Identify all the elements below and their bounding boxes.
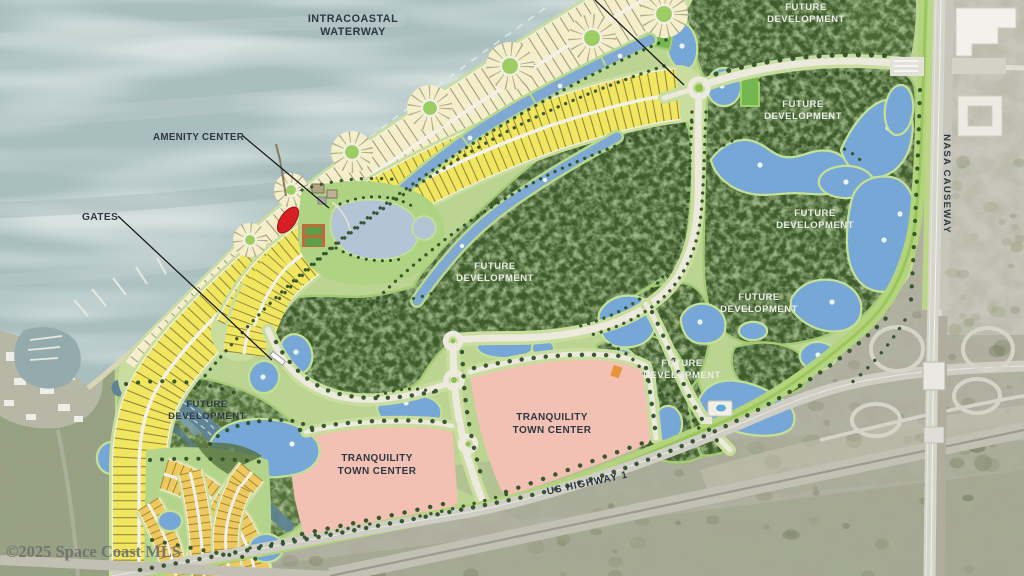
svg-text:NASA CAUSEWAY: NASA CAUSEWAY [941,134,952,234]
svg-text:GATES: GATES [82,212,118,223]
svg-text:DEVELOPMENT: DEVELOPMENT [168,411,246,422]
svg-text:©2025 Space Coast MLS: ©2025 Space Coast MLS [6,542,181,561]
svg-text:DEVELOPMENT: DEVELOPMENT [643,370,721,381]
svg-text:DEVELOPMENT: DEVELOPMENT [764,111,842,122]
svg-text:DEVELOPMENT: DEVELOPMENT [720,304,798,315]
svg-text:FUTURE: FUTURE [186,399,228,410]
svg-text:FUTURE: FUTURE [474,261,516,272]
svg-text:TOWN CENTER: TOWN CENTER [338,466,417,477]
svg-text:DEVELOPMENT: DEVELOPMENT [767,14,845,25]
svg-text:FUTURE: FUTURE [661,358,703,369]
svg-text:FUTURE: FUTURE [782,99,824,110]
svg-text:TRANQUILITY: TRANQUILITY [516,412,588,423]
svg-text:FUTURE: FUTURE [785,2,827,13]
svg-text:TRANQUILITY: TRANQUILITY [341,453,413,464]
svg-text:AMENITY CENTER: AMENITY CENTER [153,132,244,143]
svg-text:FUTURE: FUTURE [794,208,836,219]
svg-text:DEVELOPMENT: DEVELOPMENT [776,220,854,231]
svg-text:DEVELOPMENT: DEVELOPMENT [456,273,534,284]
svg-text:WATERWAY: WATERWAY [320,26,386,38]
svg-text:TOWN CENTER: TOWN CENTER [513,425,592,436]
svg-text:INTRACOASTAL: INTRACOASTAL [308,13,398,25]
svg-text:FUTURE: FUTURE [738,292,780,303]
